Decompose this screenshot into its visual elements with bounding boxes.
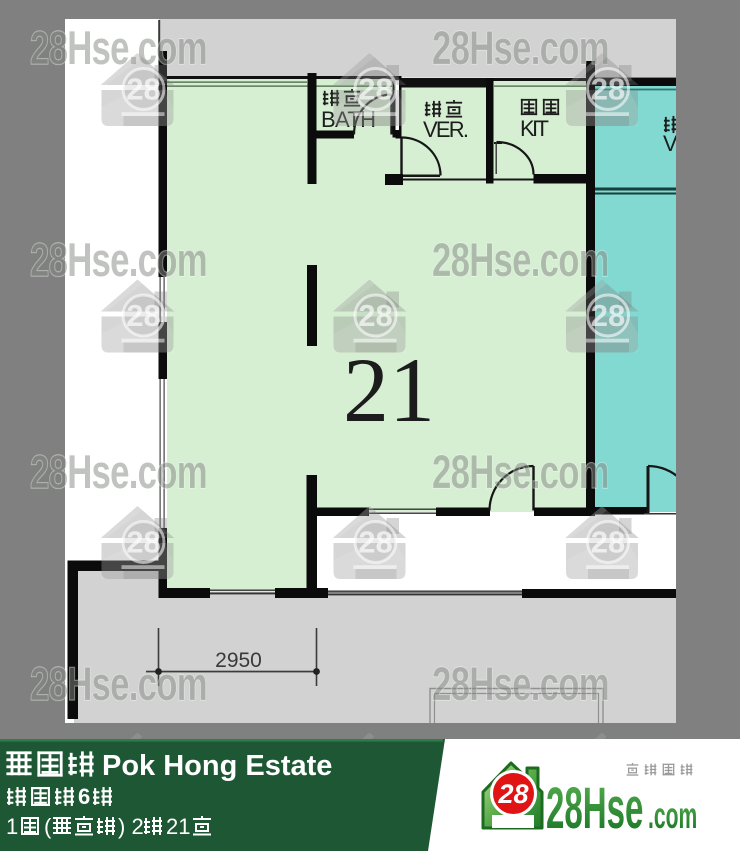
svg-text:VER.: VER. [423,117,469,142]
svg-text:1: 1 [6,814,18,839]
svg-text:21: 21 [166,814,190,839]
svg-text:6: 6 [78,784,90,809]
svg-text:21: 21 [343,339,435,441]
svg-text:Pok Hong Estate: Pok Hong Estate [102,750,332,782]
svg-text:2950: 2950 [215,649,262,672]
svg-text:KIT: KIT [520,116,549,141]
svg-text:) 2: ) 2 [118,814,144,839]
svg-text:28: 28 [497,779,528,809]
svg-text:(: ( [44,814,52,839]
svg-text:.com: .com [648,796,697,837]
svg-text:28Hse: 28Hse [546,776,643,841]
svg-text:V: V [663,131,678,156]
